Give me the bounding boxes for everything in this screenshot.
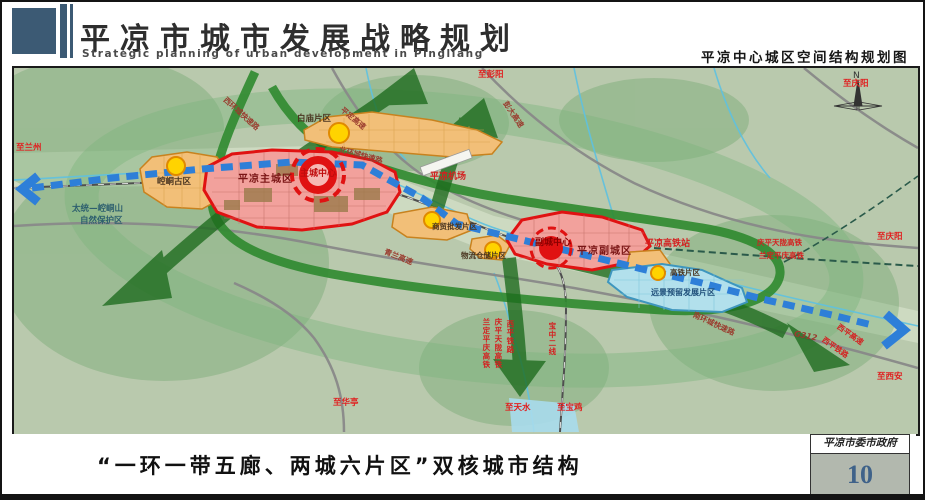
main-center-symbol [303, 160, 333, 190]
structure-caption: “一环一带五廊、两城六片区”双核城市结构 [97, 450, 583, 480]
agency-name: 平凉市委市政府 [811, 435, 909, 454]
structure-map: N 至兰州 太统—崆峒山 自然保护区 崆峒古区 平凉主城区 主城中心 北环城快速… [12, 66, 920, 436]
sub-center-symbol [539, 236, 563, 260]
title-block-bar [60, 4, 67, 58]
page-footer: “一环一带五廊、两城六片区”双核城市结构 平凉市委市政府 10 [12, 434, 916, 494]
document-subtitle-english: Strategic planning of urban development … [82, 48, 484, 60]
structure-map-canvas: N [14, 68, 918, 434]
page-number: 10 [811, 454, 909, 495]
agency-stamp-box: 平凉市委市政府 10 [810, 434, 910, 494]
planning-document-page: 平凉市城市发展战略规划 Strategic planning of urban … [0, 0, 925, 500]
page-header: 平凉市城市发展战略规划 Strategic planning of urban … [2, 2, 923, 64]
svg-text:N: N [853, 71, 860, 81]
title-block-bar-thin [70, 4, 73, 58]
title-block-square [12, 8, 56, 54]
map-sheet-title: 平凉中心城区空间结构规划图 [701, 46, 909, 66]
